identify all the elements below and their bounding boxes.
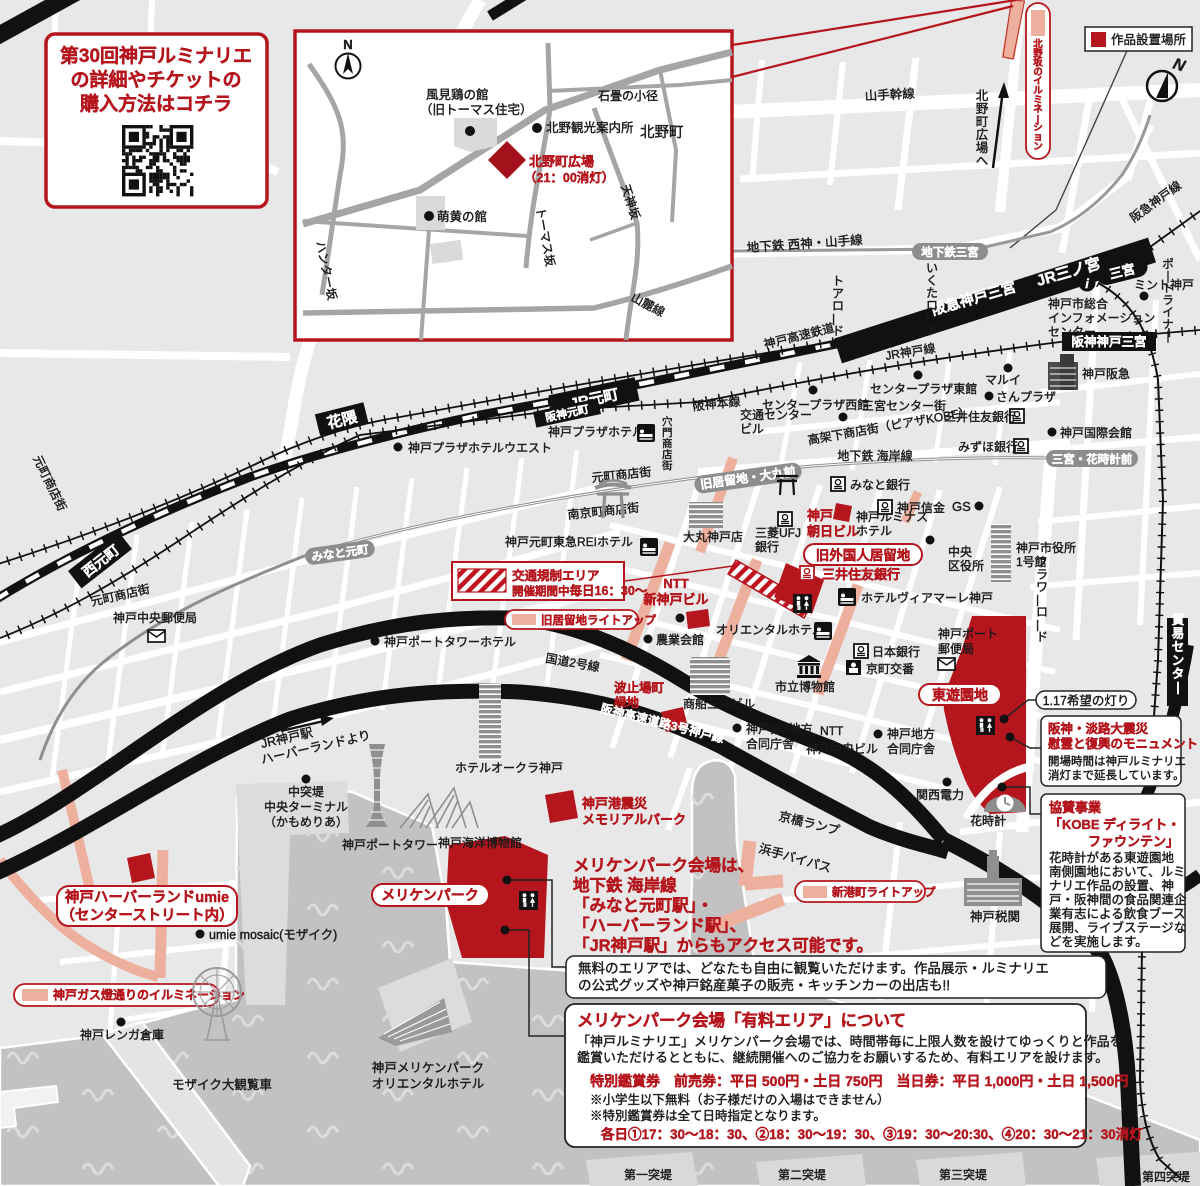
svg-text:各日①17：30〜18：30、②18：30〜19：30、③1: 各日①17：30〜18：30、②18：30〜19：30、③19：30〜20:30… xyxy=(600,1126,1143,1142)
svg-text:メリケンパーク: メリケンパーク xyxy=(381,887,479,903)
svg-text:展開、ライブステージな: 展開、ライブステージな xyxy=(1049,920,1186,935)
svg-text:umie mosaic(モザイク): umie mosaic(モザイク) xyxy=(209,928,337,942)
svg-text:三宮センター街: 三宮センター街 xyxy=(862,398,946,413)
svg-text:慰霊と復興のモニュメント: 慰霊と復興のモニュメント xyxy=(1048,736,1198,751)
svg-text:神戸市総合: 神戸市総合 xyxy=(1048,296,1108,311)
svg-text:消灯まで延長しています。: 消灯まで延長しています。 xyxy=(1048,768,1185,782)
svg-text:N: N xyxy=(343,37,352,52)
svg-text:三井住友銀行: 三井住友銀行 xyxy=(944,410,1016,424)
svg-text:オリエンタルホテル: オリエンタルホテル xyxy=(716,623,824,637)
svg-text:「神戸ルミナリエ」メリケンパーク会場では、時間帯毎に上限人数: 「神戸ルミナリエ」メリケンパーク会場では、時間帯毎に上限人数を設けてゆっくりと作… xyxy=(577,1034,1123,1049)
svg-text:神戸市役所: 神戸市役所 xyxy=(1016,540,1076,555)
svg-text:神戸プラザホテル: 神戸プラザホテル xyxy=(548,425,644,439)
svg-text:北野町広場: 北野町広場 xyxy=(529,154,594,169)
svg-text:業有志による飲食ブース: 業有志による飲食ブース xyxy=(1049,906,1186,921)
svg-text:関西電力: 関西電力 xyxy=(916,788,964,802)
svg-text:農業会館: 農業会館 xyxy=(656,632,704,647)
svg-text:風見鶏の館: 風見鶏の館 xyxy=(426,87,489,102)
svg-text:神戸国際会館: 神戸国際会館 xyxy=(1060,425,1132,440)
svg-text:（旧トーマス住宅）: （旧トーマス住宅） xyxy=(420,102,533,117)
svg-text:神戸地方: 神戸地方 xyxy=(887,726,935,741)
svg-text:地下鉄 海岸線: 地下鉄 海岸線 xyxy=(573,875,677,895)
svg-text:オリエンタルホテル: オリエンタルホテル xyxy=(372,1077,485,1091)
svg-text:モザイク大観覧車: モザイク大観覧車 xyxy=(172,1077,272,1092)
svg-text:阪神・淡路大震災: 阪神・淡路大震災 xyxy=(1048,721,1149,736)
svg-text:萌黄の館: 萌黄の館 xyxy=(437,209,487,224)
svg-text:神戸信金: 神戸信金 xyxy=(897,500,945,515)
svg-text:中突堤: 中突堤 xyxy=(288,784,324,799)
svg-text:北野町広場へ: 北野町広場へ xyxy=(976,89,989,168)
svg-text:神戸阪急: 神戸阪急 xyxy=(1082,366,1130,381)
svg-text:神戸第2地方: 神戸第2地方 xyxy=(746,721,813,736)
svg-text:郵便局: 郵便局 xyxy=(938,642,974,656)
svg-text:マルイ: マルイ xyxy=(985,373,1021,387)
svg-text:いくたロ|ド: いくたロ|ド xyxy=(926,261,938,338)
svg-text:メリケンパーク会場「有料エリア」について: メリケンパーク会場「有料エリア」について xyxy=(577,1010,906,1030)
svg-text:さんプラザ: さんプラザ xyxy=(996,390,1056,404)
svg-text:※小学生以下無料（お子様だけの入場はできません）: ※小学生以下無料（お子様だけの入場はできません） xyxy=(590,1092,890,1107)
svg-text:ビル: ビル xyxy=(740,422,764,436)
svg-text:戸・阪神間の食品関連企: 戸・阪神間の食品関連企 xyxy=(1049,892,1187,907)
svg-text:神戸海洋博物館: 神戸海洋博物館 xyxy=(438,835,522,850)
svg-text:（センターストリート内）: （センターストリート内） xyxy=(60,906,233,924)
svg-text:（21：00消灯）: （21：00消灯） xyxy=(524,170,614,185)
svg-text:銀行: 銀行 xyxy=(755,540,779,554)
svg-text:1.17希望の灯り: 1.17希望の灯り xyxy=(1043,693,1130,708)
svg-text:波止場町: 波止場町 xyxy=(614,680,665,695)
svg-text:中央ターミナル: 中央ターミナル xyxy=(264,799,348,814)
svg-text:NTT: NTT xyxy=(820,724,844,738)
svg-text:神戸ポート: 神戸ポート xyxy=(938,627,998,641)
svg-text:京町交番: 京町交番 xyxy=(866,661,914,676)
svg-text:南側園地において、ルミ: 南側園地において、ルミ xyxy=(1049,864,1186,879)
svg-text:みずほ銀行: みずほ銀行 xyxy=(958,440,1018,454)
svg-text:三菱UFJ: 三菱UFJ xyxy=(755,526,801,540)
svg-text:センター: センター xyxy=(1048,325,1096,339)
svg-text:センタープラザ西館: センタープラザ西館 xyxy=(762,397,869,412)
svg-text:GS: GS xyxy=(952,499,971,514)
svg-text:神戸メリケンパーク: 神戸メリケンパーク xyxy=(372,1061,484,1075)
svg-text:穴門商店街: 穴門商店街 xyxy=(662,415,673,472)
svg-text:交通規制エリア: 交通規制エリア xyxy=(512,568,600,583)
svg-text:花時計: 花時計 xyxy=(970,813,1006,828)
svg-text:i: i xyxy=(1085,276,1089,291)
svg-text:合同庁舎: 合同庁舎 xyxy=(887,741,935,756)
svg-text:「KOBE ディライト・: 「KOBE ディライト・ xyxy=(1049,817,1180,832)
svg-text:協賛事業: 協賛事業 xyxy=(1049,800,1102,815)
svg-text:インフォメーション: インフォメーション xyxy=(1048,311,1155,325)
svg-text:「みなと元町駅」・: 「みなと元町駅」・ xyxy=(573,895,713,915)
svg-text:ナリエ作品の設置、神: ナリエ作品の設置、神 xyxy=(1049,878,1174,893)
svg-text:日本銀行: 日本銀行 xyxy=(872,645,920,659)
svg-text:山手幹線: 山手幹線 xyxy=(864,86,915,104)
svg-text:の詳細やチケットの: の詳細やチケットの xyxy=(70,68,241,91)
svg-text:ホテルオークラ神戸: ホテルオークラ神戸 xyxy=(455,761,563,775)
svg-text:特別鑑賞券 前売券：平日 500円・土日 750円 当日券：: 特別鑑賞券 前売券：平日 500円・土日 750円 当日券：平日 1,000円・… xyxy=(590,1073,1128,1089)
svg-text:「ハーバーランド駅」、: 「ハーバーランド駅」、 xyxy=(573,915,746,935)
svg-text:新港町ライトアップ: 新港町ライトアップ xyxy=(832,885,936,899)
svg-text:開場時間は神戸ルミナリエ: 開場時間は神戸ルミナリエ xyxy=(1048,754,1186,768)
svg-text:開催期間中毎日16：30〜: 開催期間中毎日16：30〜 xyxy=(512,583,648,598)
svg-text:旧居留地ライトアップ: 旧居留地ライトアップ xyxy=(541,613,656,627)
svg-text:メモリアルパーク: メモリアルパーク xyxy=(582,812,686,827)
svg-text:三宮・花時計前: 三宮・花時計前 xyxy=(1052,452,1133,466)
svg-text:「JR神戸駅」からもアクセス可能です。: 「JR神戸駅」からもアクセス可能です。 xyxy=(573,935,873,955)
svg-text:鑑賞いただけるとともに、継続開催へのご協力をお願いするため、: 鑑賞いただけるとともに、継続開催へのご協力をお願いするため、有料エリアを設けます… xyxy=(577,1050,1108,1065)
svg-text:神戸レンガ倉庫: 神戸レンガ倉庫 xyxy=(80,1027,164,1042)
svg-text:（かもめりあ）: （かもめりあ） xyxy=(264,815,348,829)
svg-text:花時計がある東遊園地: 花時計がある東遊園地 xyxy=(1049,850,1175,865)
svg-text:神戸中央ビル: 神戸中央ビル xyxy=(806,741,878,756)
svg-text:神戸税関: 神戸税関 xyxy=(970,910,1020,924)
svg-text:第四突堤: 第四突堤 xyxy=(1142,1169,1190,1184)
svg-text:新神戸ビル: 新神戸ビル xyxy=(643,592,708,607)
svg-text:中央: 中央 xyxy=(948,544,972,559)
svg-text:※特別鑑賞券は全て日時指定となります。: ※特別鑑賞券は全て日時指定となります。 xyxy=(590,1108,826,1123)
svg-text:神戸中央郵便局: 神戸中央郵便局 xyxy=(113,610,197,625)
svg-text:ミント神戸: ミント神戸 xyxy=(1134,278,1194,292)
svg-text:第三突堤: 第三突堤 xyxy=(939,1167,987,1182)
svg-text:地下鉄三宮: 地下鉄三宮 xyxy=(921,245,979,259)
svg-text:北野観光案内所: 北野観光案内所 xyxy=(546,120,634,135)
svg-text:区役所: 区役所 xyxy=(948,558,984,573)
svg-text:三井住友銀行: 三井住友銀行 xyxy=(822,567,900,582)
svg-text:北野町: 北野町 xyxy=(640,124,684,141)
svg-text:ポ|トライナ|: ポ|トライナ| xyxy=(1162,258,1174,343)
svg-text:第30回神戸ルミナリエ: 第30回神戸ルミナリエ xyxy=(60,44,252,67)
svg-text:購入方法はコチラ: 購入方法はコチラ xyxy=(80,92,232,115)
svg-text:神戸プラザホテルウエスト: 神戸プラザホテルウエスト xyxy=(408,441,552,455)
svg-text:朝日ビル: 朝日ビル xyxy=(807,524,859,539)
svg-text:ホテル: ホテル xyxy=(856,524,892,538)
svg-text:みなと銀行: みなと銀行 xyxy=(850,478,910,492)
svg-text:神戸ポートタワー: 神戸ポートタワー xyxy=(342,838,438,852)
svg-text:神戸: 神戸 xyxy=(807,508,833,523)
svg-text:ファウンテン」: ファウンテン」 xyxy=(1088,834,1179,849)
svg-text:第一突堤: 第一突堤 xyxy=(624,1167,672,1182)
svg-text:神戸ポートタワーホテル: 神戸ポートタワーホテル xyxy=(384,635,516,649)
svg-text:大丸神戸店: 大丸神戸店 xyxy=(683,530,743,544)
svg-text:合同庁舎: 合同庁舎 xyxy=(746,736,794,751)
svg-text:の公式グッズや神戸銘産菓子の販売・キッチンカーの出店も!!: の公式グッズや神戸銘産菓子の販売・キッチンカーの出店も!! xyxy=(578,978,950,993)
svg-text:北野坂のイルミネ|ション: 北野坂のイルミネ|ション xyxy=(1033,38,1043,152)
svg-text:作品設置場所: 作品設置場所 xyxy=(1111,32,1186,47)
svg-text:メリケンパーク会場は、: メリケンパーク会場は、 xyxy=(573,855,754,875)
svg-text:石畳の小径: 石畳の小径 xyxy=(598,89,658,103)
svg-text:センタープラザ東館: センタープラザ東館 xyxy=(870,381,977,396)
svg-text:東遊園地: 東遊園地 xyxy=(932,687,988,703)
svg-text:神戸ハーバーランドumie: 神戸ハーバーランドumie xyxy=(65,888,229,906)
svg-text:どを実施します。: どを実施します。 xyxy=(1049,934,1148,949)
svg-text:旧外国人居留地: 旧外国人居留地 xyxy=(816,547,911,563)
svg-text:NTT: NTT xyxy=(663,576,688,591)
svg-text:ホテルヴィアマーレ神戸: ホテルヴィアマーレ神戸 xyxy=(861,590,993,605)
svg-text:神戸元町東急REIホテル: 神戸元町東急REIホテル xyxy=(505,534,633,549)
svg-text:地下鉄 海岸線: 地下鉄 海岸線 xyxy=(837,448,912,463)
svg-text:神戸港震災: 神戸港震災 xyxy=(582,796,648,811)
svg-text:無料のエリアでは、どなたも自由に観覧いただけます。作品展示・: 無料のエリアでは、どなたも自由に観覧いただけます。作品展示・ルミナリエ xyxy=(578,960,1049,976)
svg-text:商船三井ビル: 商船三井ビル xyxy=(683,696,755,711)
svg-text:市立博物館: 市立博物館 xyxy=(775,679,835,694)
svg-text:第二突堤: 第二突堤 xyxy=(778,1167,826,1182)
